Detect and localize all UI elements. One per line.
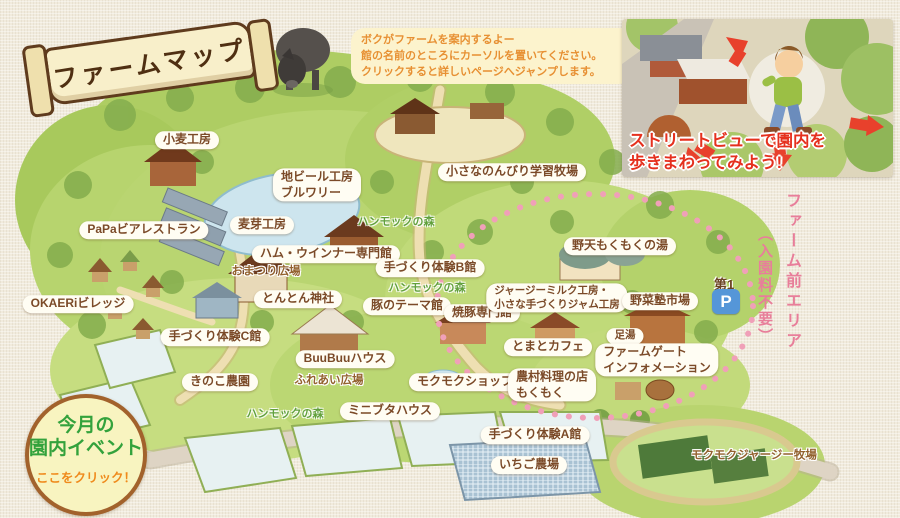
label-jibeer-brewery-text: 地ビール工房 (281, 169, 353, 185)
label-tezukuri-taiken-c-text: 手づくり体験C館 (169, 329, 262, 345)
label-tezukuri-taiken-a[interactable]: 手づくり体験A館 (481, 426, 590, 444)
label-komugi-kobo-text: 小麦工房 (163, 132, 211, 148)
label-ichigo-nojo-text: いちご農場 (499, 457, 559, 473)
label-ashiyu[interactable]: 足湯 (607, 328, 644, 344)
label-buubuu-house-text: BuuBuuハウス (304, 351, 387, 367)
label-ham-wiener-senmonkan-text: ハム・ウインナー専門館 (260, 246, 392, 262)
label-bakuga-kobo[interactable]: 麦芽工房 (230, 216, 294, 234)
label-papa-beer-restaurant-text: PaPaビアレストラン (87, 222, 200, 238)
label-minibuta-house[interactable]: ミニブタハウス (340, 402, 440, 420)
label-jersey-milk-kobo-text: 小さな手づくりジャム工房 (494, 298, 619, 312)
label-farm-gate-information-text: ファームゲート (603, 344, 710, 360)
label-jibeer-brewery-text: ブルワリー (281, 185, 353, 201)
parking-icon: P (712, 289, 740, 314)
guide-line: ボクがファームを案内するよー (361, 33, 623, 49)
label-buta-theme-kan[interactable]: 豚のテーマ館 (363, 297, 451, 315)
label-mokumoku-jersey-bokujo-text: モクモクジャージー牧場 (691, 449, 817, 464)
label-buta-theme-kan-text: 豚のテーマ館 (371, 298, 443, 314)
label-fureai-hiroba-text: ふれあい広場 (295, 374, 364, 389)
event-badge-cta: ここをクリック！ (29, 467, 143, 486)
farm-map-page: 小麦工房地ビール工房ブルワリー小さなのんびり学習牧場PaPaビアレストラン麦芽工… (0, 0, 900, 518)
label-jersey-milk-kobo-text: ジャージーミルク工房・ (494, 284, 619, 298)
label-nouson-ryori-mokumoku[interactable]: 農村料理の店もくもく (508, 368, 596, 401)
label-mokumoku-shop[interactable]: モクモクショップ (409, 373, 521, 391)
label-kinoko-nouen-text: きのこ農園 (190, 374, 250, 390)
label-tonton-jinja[interactable]: とんとん神社 (254, 290, 342, 308)
guide-line: クリックすると詳しいページへジャンプします。 (361, 65, 623, 81)
event-badge-title-line2: 園内イベント (29, 438, 143, 461)
label-hammock-forest-1: ハンモックの森 (358, 215, 435, 229)
label-ichigo-nojo[interactable]: いちご農場 (491, 456, 567, 474)
label-okaeri-village-text: OKAERiビレッジ (31, 296, 126, 312)
pig-photo (270, 16, 336, 98)
label-mokumoku-shop-text: モクモクショップ (417, 374, 513, 390)
label-nonbiri-gakushu-bokujo-text: 小さなのんびり学習牧場 (446, 164, 578, 180)
streetview-promo-text: ストリートビューで園内を 歩きまわってみよう! (629, 131, 826, 174)
label-ashiyu-text: 足湯 (615, 329, 636, 343)
label-buubuu-house[interactable]: BuuBuuハウス (296, 350, 395, 368)
label-papa-beer-restaurant[interactable]: PaPaビアレストラン (79, 221, 208, 239)
label-nouson-ryori-mokumoku-text: もくもく (516, 385, 588, 401)
label-tezukuri-taiken-a-text: 手づくり体験A館 (489, 427, 582, 443)
label-farm-gate-information-text: インフォメーション (603, 360, 710, 376)
label-jibeer-brewery[interactable]: 地ビール工房ブルワリー (273, 168, 361, 201)
label-farm-gate-information[interactable]: ファームゲートインフォメーション (595, 343, 718, 376)
label-tomato-cafe-text: とまとカフェ (512, 339, 584, 355)
label-nonbiri-gakushu-bokujo[interactable]: 小さなのんびり学習牧場 (438, 163, 586, 181)
event-badge-title-line1: 今月の (29, 415, 143, 438)
label-noten-mokumoku-no-yu[interactable]: 野天もくもくの湯 (564, 237, 676, 255)
label-mokumoku-jersey-bokujo[interactable]: モクモクジャージー牧場 (691, 449, 817, 464)
label-yasai-juku-ichiba-text: 野菜塾市場 (630, 293, 690, 309)
event-badge-button[interactable]: 今月の 園内イベント ここをクリック！ (25, 394, 147, 516)
label-hammock-forest-2: ハンモックの森 (389, 281, 466, 295)
label-omatsuri-hiroba-text: おまつり広場 (232, 265, 301, 280)
label-omatsuri-hiroba: おまつり広場 (232, 265, 301, 280)
streetview-promo-link[interactable]: ストリートビューで園内を 歩きまわってみよう! (622, 19, 893, 177)
label-tezukuri-taiken-c[interactable]: 手づくり体験C館 (161, 328, 270, 346)
label-hammock-forest-3-text: ハンモックの森 (247, 407, 324, 421)
streetview-text-line: 歩きまわってみよう! (629, 153, 826, 174)
guide-speech-bubble: ボクがファームを案内するよー 館の名前のところにカーソルを置いてください。 クリ… (351, 28, 633, 84)
label-hammock-forest-3: ハンモックの森 (247, 407, 324, 421)
label-fureai-hiroba: ふれあい広場 (295, 374, 364, 389)
label-komugi-kobo[interactable]: 小麦工房 (155, 131, 219, 149)
label-hammock-forest-1-text: ハンモックの森 (358, 215, 435, 229)
label-tomato-cafe[interactable]: とまとカフェ (504, 338, 592, 356)
label-tezukuri-taiken-b[interactable]: 手づくり体験B館 (376, 259, 485, 277)
label-minibuta-house-text: ミニブタハウス (348, 403, 432, 419)
label-bakuga-kobo-text: 麦芽工房 (238, 217, 286, 233)
label-nouson-ryori-mokumoku-text: 農村料理の店 (516, 369, 588, 385)
label-kinoko-nouen[interactable]: きのこ農園 (182, 373, 258, 391)
farm-front-area-note: （入園料不要） (754, 226, 775, 345)
guide-line: 館の名前のところにカーソルを置いてください。 (361, 49, 623, 65)
label-ham-wiener-senmonkan[interactable]: ハム・ウインナー専門館 (252, 245, 400, 263)
label-hammock-forest-2-text: ハンモックの森 (389, 281, 466, 295)
label-tezukuri-taiken-b-text: 手づくり体験B館 (384, 260, 477, 276)
label-noten-mokumoku-no-yu-text: 野天もくもくの湯 (572, 238, 668, 254)
page-title: ファームマップ (51, 30, 249, 96)
label-yasai-juku-ichiba[interactable]: 野菜塾市場 (622, 292, 698, 310)
label-okaeri-village[interactable]: OKAERiビレッジ (23, 295, 134, 313)
streetview-text-line: ストリートビューで園内を (629, 131, 826, 152)
label-tonton-jinja-text: とんとん神社 (262, 291, 334, 307)
farm-front-area-name: ファーム前エリア (779, 192, 803, 352)
label-jersey-milk-kobo[interactable]: ジャージーミルク工房・小さな手づくりジャム工房 (486, 283, 627, 312)
